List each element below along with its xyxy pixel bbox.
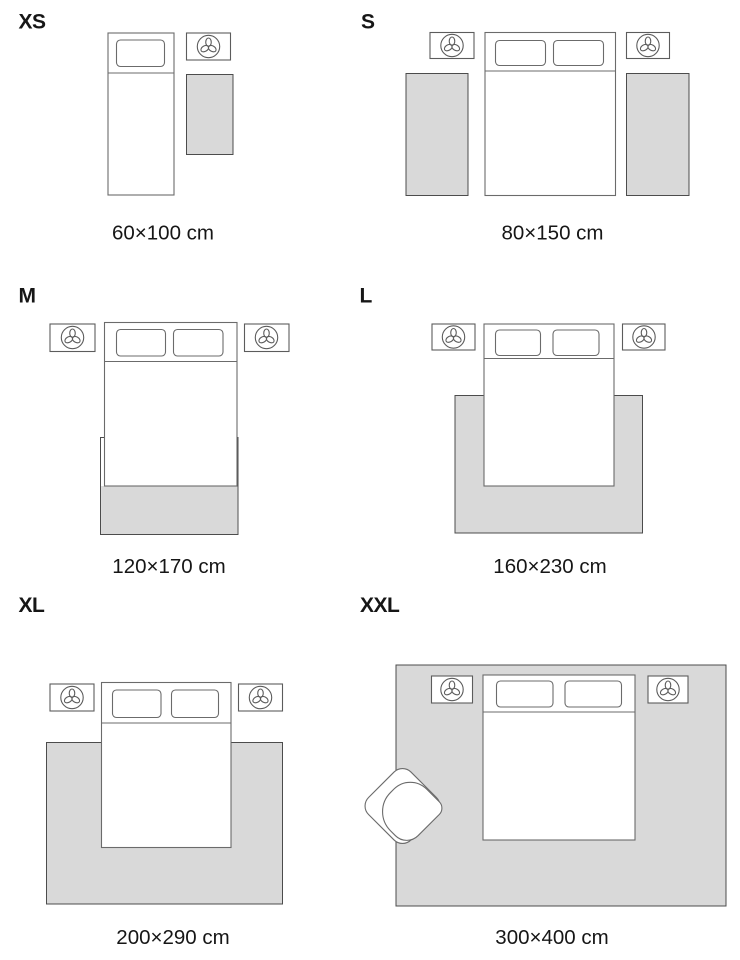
svg-text:160×230 cm: 160×230 cm <box>493 555 606 578</box>
svg-text:60×100 cm: 60×100 cm <box>112 222 214 245</box>
svg-text:M: M <box>19 285 36 308</box>
svg-text:120×170 cm: 120×170 cm <box>112 555 225 578</box>
svg-text:L: L <box>360 285 373 308</box>
svg-text:S: S <box>361 11 375 34</box>
svg-text:XL: XL <box>19 594 46 617</box>
svg-text:80×150 cm: 80×150 cm <box>502 222 604 245</box>
svg-text:200×290 cm: 200×290 cm <box>116 926 229 949</box>
svg-text:XXL: XXL <box>360 594 400 617</box>
svg-text:300×400 cm: 300×400 cm <box>495 926 608 949</box>
svg-text:XS: XS <box>19 11 47 34</box>
